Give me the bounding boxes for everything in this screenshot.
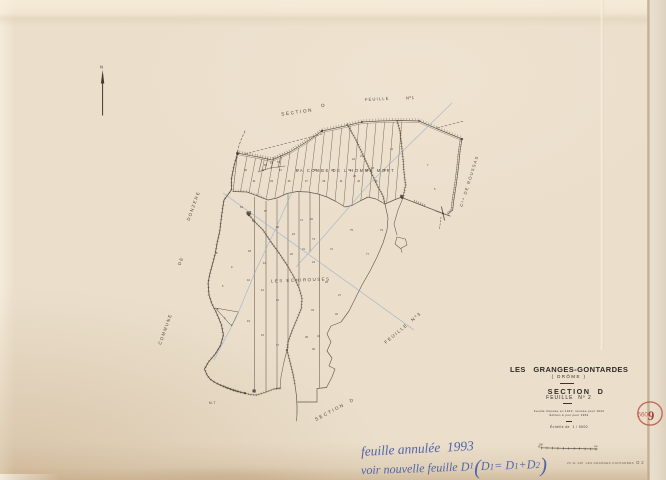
svg-text:COMMUNE: COMMUNE: [157, 313, 173, 346]
svg-text:40: 40: [335, 312, 338, 316]
svg-text:22: 22: [352, 157, 355, 161]
svg-text:39: 39: [322, 179, 325, 183]
svg-text:35: 35: [305, 335, 308, 339]
svg-text:Cᵒᵉ DE ROUSSAS: Cᵒᵉ DE ROUSSAS: [459, 155, 480, 208]
svg-text:12: 12: [261, 288, 264, 292]
svg-text:9: 9: [647, 408, 655, 423]
svg-text:5: 5: [434, 187, 436, 191]
svg-text:67: 67: [264, 209, 267, 213]
svg-text:LA COMBE DE L’HOMME MORT: LA COMBE DE L’HOMME MORT: [296, 168, 395, 173]
svg-text:15: 15: [247, 319, 250, 323]
svg-text:71: 71: [300, 218, 303, 222]
svg-text:500: 500: [594, 446, 598, 448]
svg-text:12: 12: [390, 147, 393, 151]
svg-text:34: 34: [317, 334, 320, 338]
svg-text:33: 33: [311, 308, 314, 312]
svg-text:24: 24: [292, 232, 295, 236]
svg-text:6: 6: [217, 307, 219, 311]
svg-text:21: 21: [302, 247, 305, 251]
svg-text:69: 69: [276, 225, 279, 229]
svg-text:25: 25: [353, 174, 356, 178]
svg-text:N: N: [100, 65, 103, 70]
svg-text:FEUILLE: FEUILLE: [365, 96, 390, 102]
svg-text:FEUILLE Nº3: FEUILLE Nº3: [383, 311, 422, 345]
svg-text:5: 5: [222, 284, 224, 288]
svg-text:16: 16: [261, 333, 264, 337]
svg-text:27: 27: [338, 293, 341, 297]
svg-text:35: 35: [288, 179, 291, 183]
svg-text:74: 74: [330, 247, 333, 251]
svg-text:14: 14: [276, 298, 279, 302]
svg-text:30: 30: [244, 168, 247, 172]
svg-text:DE: DE: [177, 256, 185, 266]
svg-text:10: 10: [247, 278, 250, 282]
svg-text:18: 18: [248, 249, 251, 253]
svg-text:17: 17: [276, 343, 279, 347]
svg-text:M.: M.: [538, 447, 541, 449]
svg-text:D: D: [321, 102, 327, 108]
svg-text:DONZERE: DONZERE: [186, 190, 201, 221]
svg-text:SECTION D: SECTION D: [314, 397, 355, 422]
svg-text:8: 8: [216, 251, 218, 255]
svg-text:M.T: M.T: [209, 401, 216, 405]
svg-text:43: 43: [357, 179, 360, 183]
svg-text:20: 20: [290, 252, 293, 256]
svg-text:31: 31: [253, 179, 256, 183]
svg-text:73: 73: [312, 237, 315, 241]
svg-text:LES ECHIROUSES: LES ECHIROUSES: [271, 276, 331, 283]
svg-text:50: 50: [264, 163, 267, 167]
svg-text:7: 7: [427, 163, 429, 167]
svg-text:9: 9: [231, 265, 233, 269]
svg-text:36: 36: [312, 347, 315, 351]
svg-text:SECTION: SECTION: [281, 107, 313, 116]
svg-text:75: 75: [350, 228, 353, 232]
svg-text:77: 77: [366, 252, 369, 256]
svg-text:45: 45: [375, 179, 378, 183]
svg-text:23: 23: [312, 260, 315, 264]
svg-text:41: 41: [340, 179, 343, 183]
svg-text:37: 37: [305, 179, 308, 183]
svg-text:34: 34: [279, 168, 282, 172]
svg-text:79: 79: [380, 228, 383, 232]
svg-text:33: 33: [270, 179, 273, 183]
svg-text:26: 26: [310, 217, 313, 221]
svg-text:Nº1: Nº1: [406, 95, 415, 101]
